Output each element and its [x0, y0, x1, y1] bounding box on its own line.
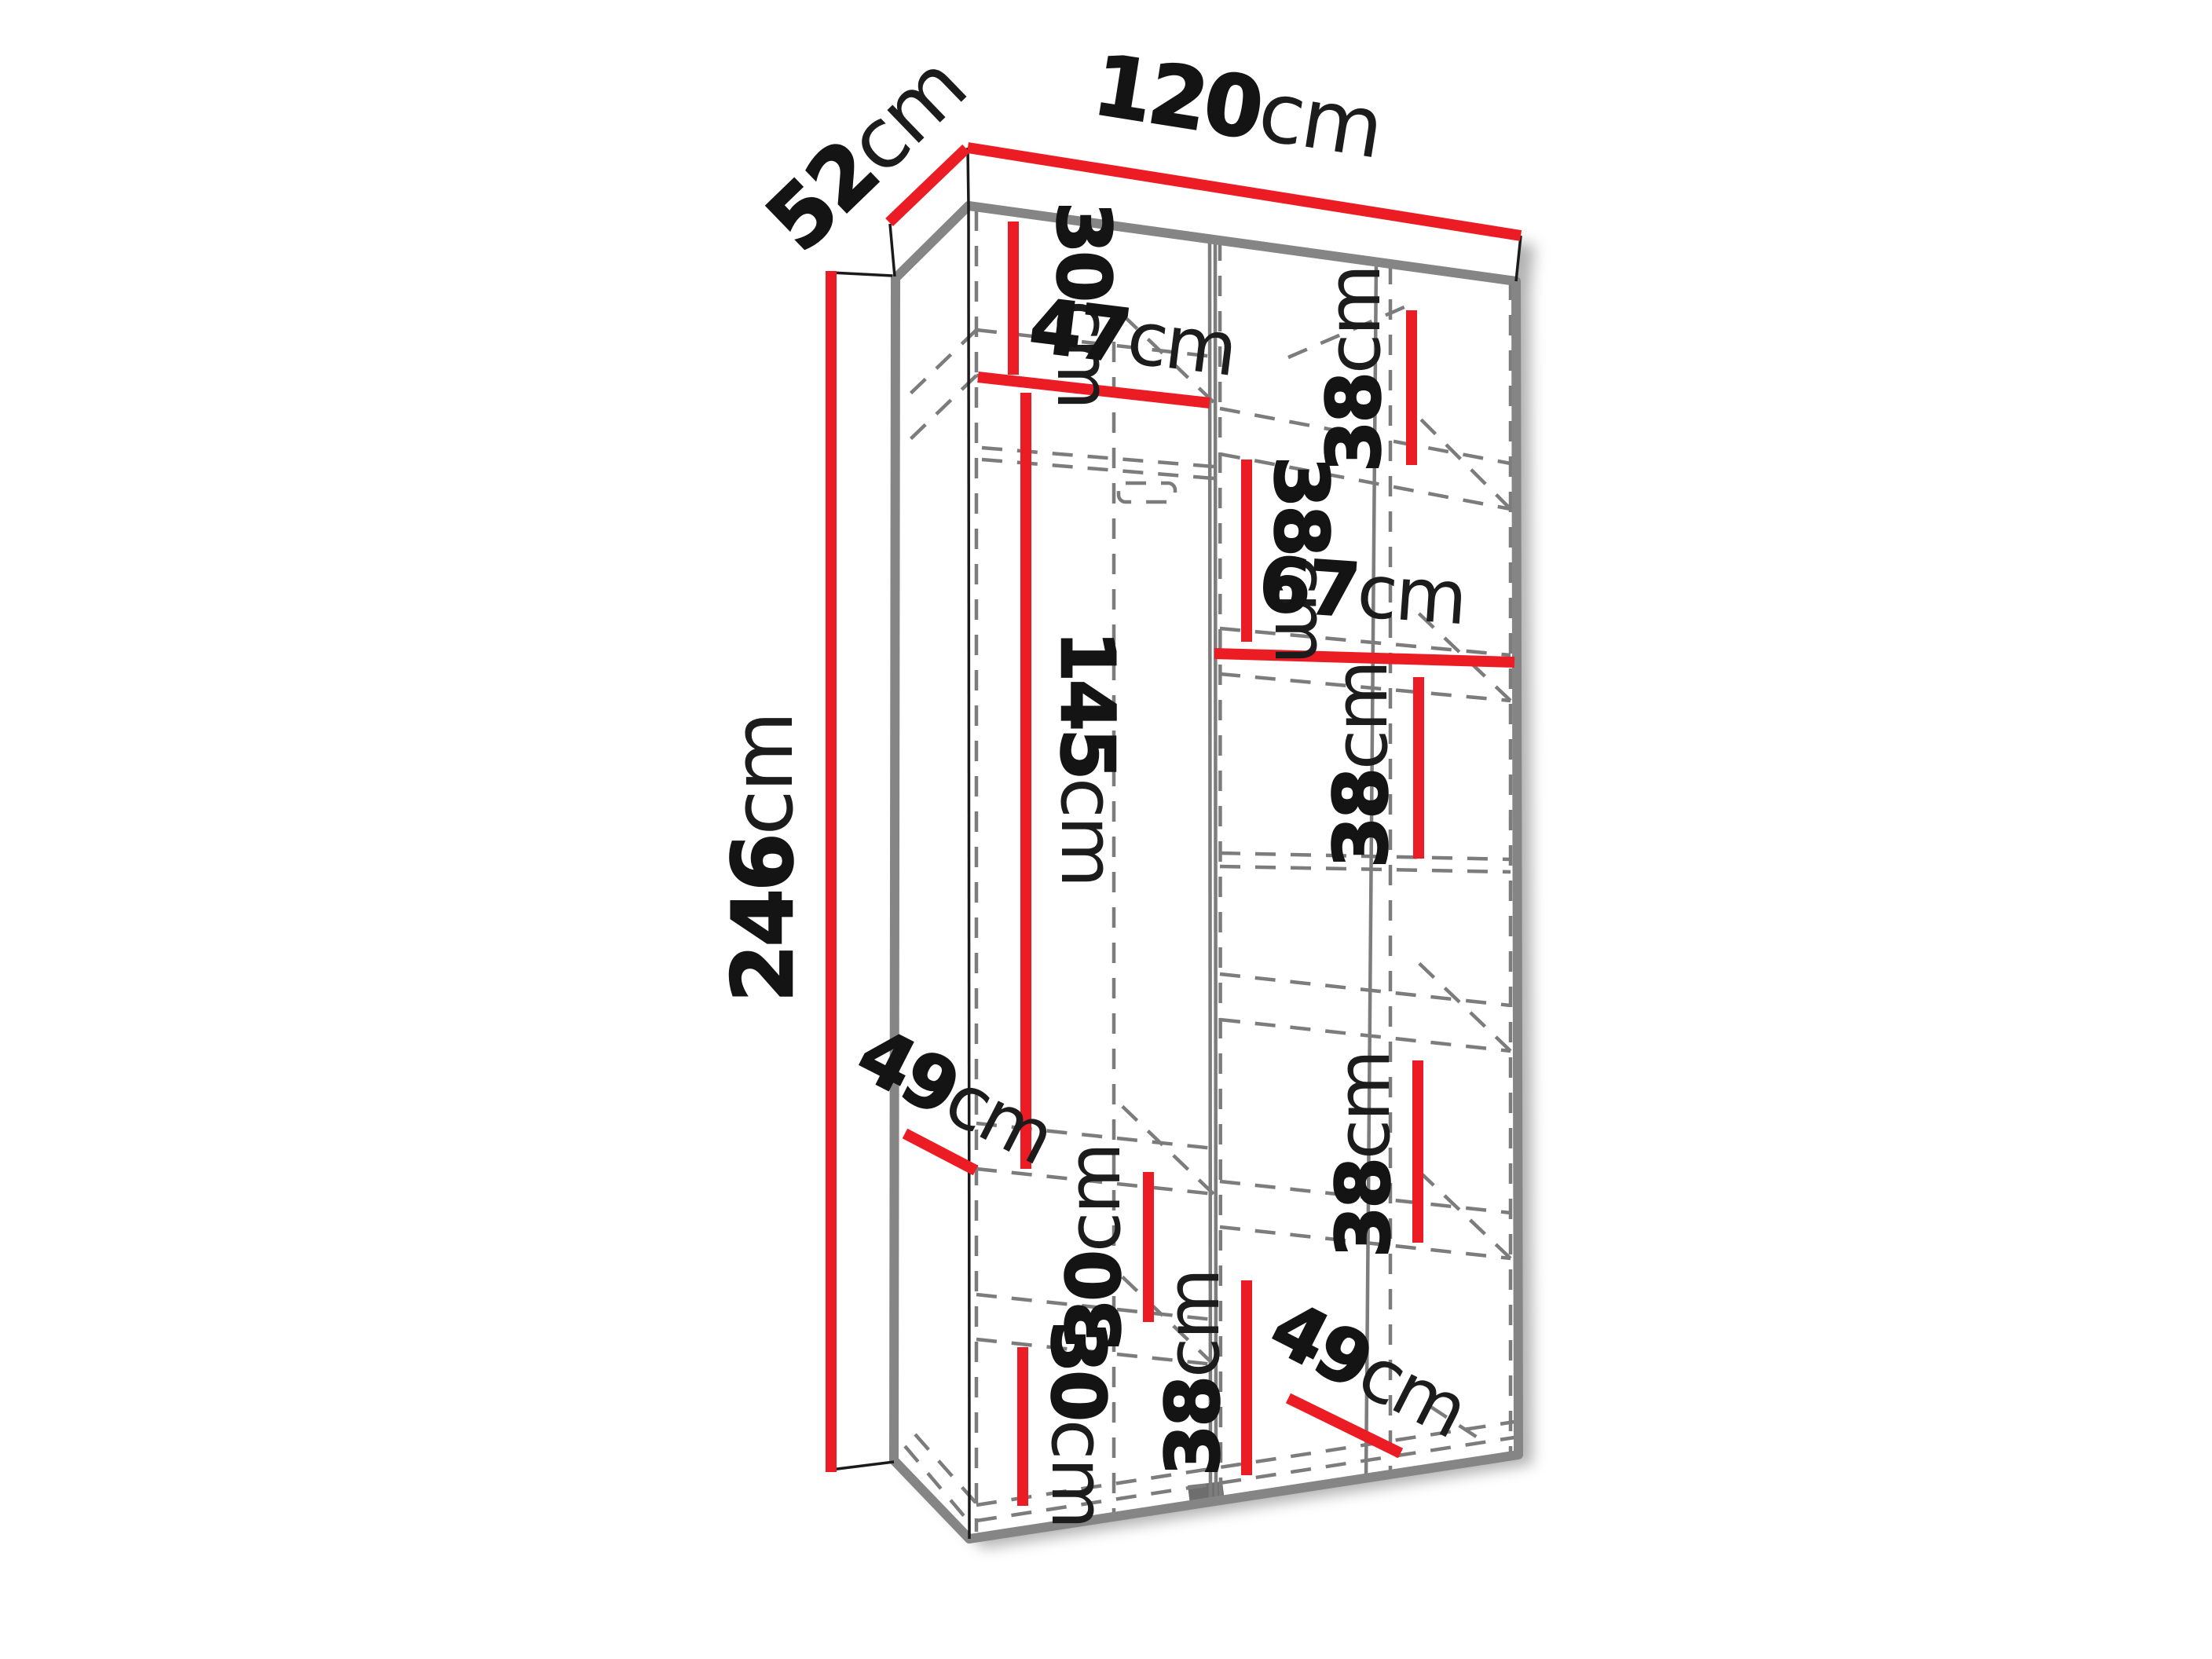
height-tick-top: [831, 273, 892, 276]
label-left-bottom-section: 30cm: [1035, 1321, 1120, 1527]
label-right-section-4: 38cm: [1321, 1052, 1407, 1258]
label-height-left: 246cm: [715, 713, 811, 1002]
label-right-section-5: 38cm: [1151, 1270, 1236, 1476]
height-tick-bottom: [831, 1462, 894, 1470]
label-right-section-3: 38cm: [1319, 662, 1404, 868]
top-band-left-edge: [968, 148, 969, 206]
wardrobe-dimension-diagram: 52cm 120cm 246cm 30cm 47cm 145cm 38cm 38…: [0, 0, 2212, 1659]
label-right-width: 67cm: [1257, 542, 1468, 642]
label-width-top: 120cm: [1087, 36, 1388, 177]
label-left-mid-section: 30cm: [1052, 1144, 1137, 1350]
label-right-section-1: 38cm: [1312, 266, 1397, 472]
front-left-edge: [969, 206, 969, 1539]
label-left-hanging-height: 145cm: [1044, 631, 1130, 885]
